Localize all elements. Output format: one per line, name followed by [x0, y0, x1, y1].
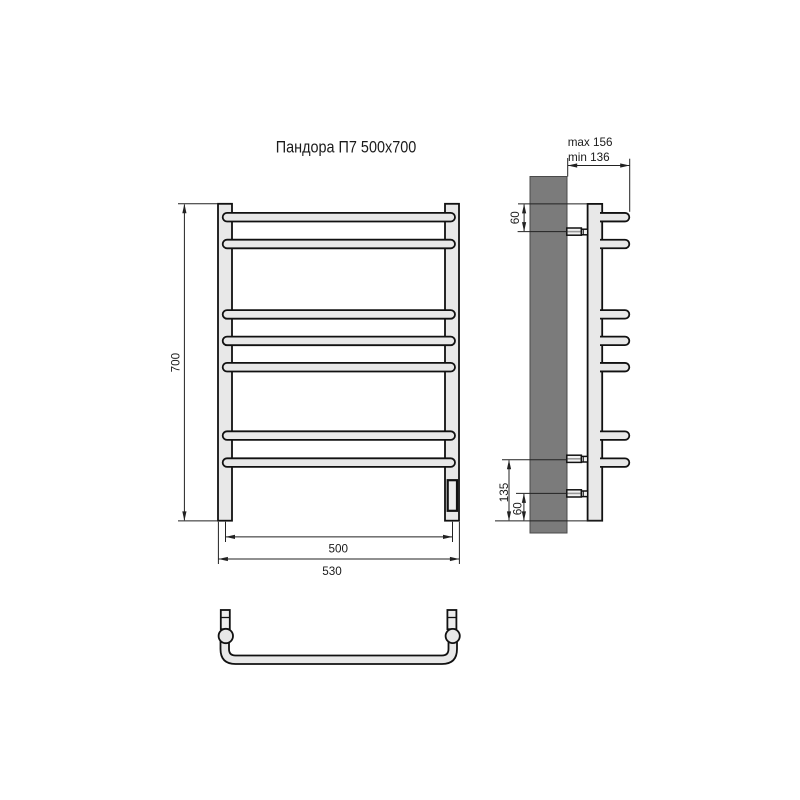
svg-text:700: 700 [170, 352, 183, 372]
svg-text:min 136: min 136 [568, 151, 610, 164]
svg-text:60: 60 [509, 211, 522, 225]
svg-text:135: 135 [498, 482, 511, 502]
svg-text:500: 500 [329, 543, 349, 556]
svg-text:530: 530 [322, 565, 342, 578]
svg-text:Пандора П7 500x700: Пандора П7 500x700 [276, 138, 417, 157]
svg-text:max 156: max 156 [568, 136, 613, 149]
svg-text:60: 60 [512, 502, 525, 516]
